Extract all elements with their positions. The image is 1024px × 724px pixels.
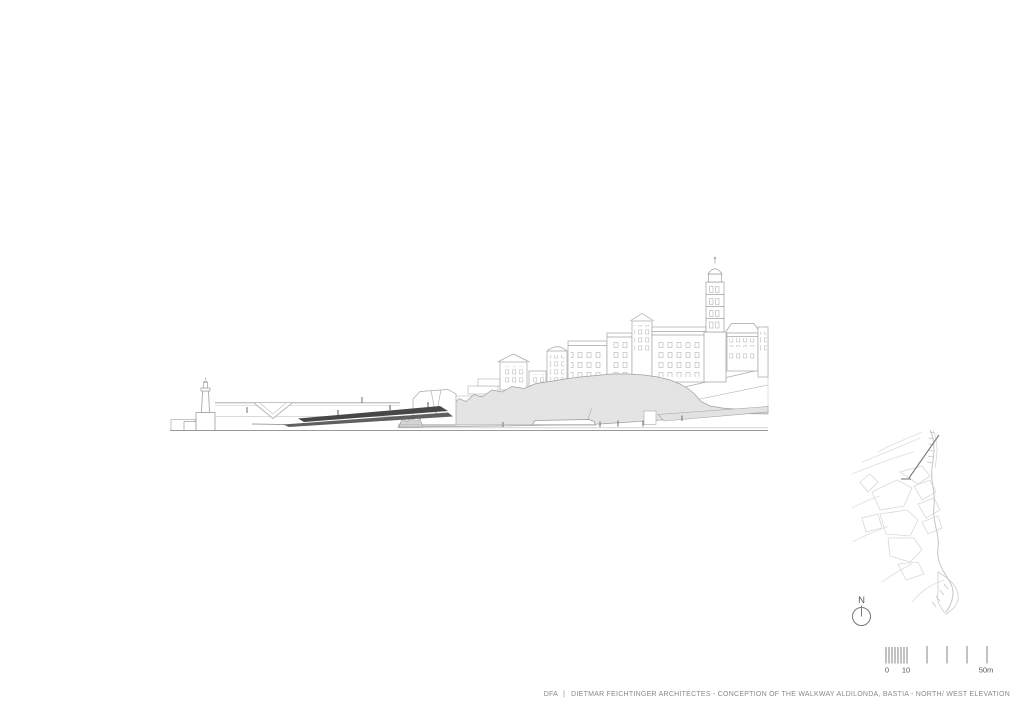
bell-tower: [704, 257, 726, 382]
north-label: N: [858, 595, 865, 606]
scale-label-10: 10: [902, 666, 910, 675]
scale-label-50m: 50m: [979, 666, 994, 675]
lighthouse: [184, 378, 215, 431]
title-block: DFA|DIETMAR FEICHTINGER ARCHITECTES - CO…: [544, 691, 1010, 698]
title-divider: |: [563, 691, 565, 698]
scale-label-0: 0: [885, 666, 889, 675]
sheet-title: DIETMAR FEICHTINGER ARCHITECTES - CONCEP…: [571, 691, 1010, 698]
scale-ticks-dense: [886, 647, 907, 664]
site-map: [852, 430, 958, 614]
scale-ticks-major: [927, 646, 987, 664]
sheet-canvas: N 0 10 50m: [0, 0, 1024, 724]
north-arrow: N: [853, 595, 871, 626]
drawing-sheet: N 0 10 50m DFA|DIETMAR FEICHTINGER ARCHI…: [0, 0, 1024, 724]
map-coastline: [927, 430, 958, 614]
jetty-v-notch: [254, 403, 292, 419]
firm-name: DFA: [544, 691, 558, 698]
scale-bar: 0 10 50m: [885, 646, 993, 675]
elevation-drawing: [170, 257, 768, 430]
map-city-blocks: [860, 466, 942, 580]
